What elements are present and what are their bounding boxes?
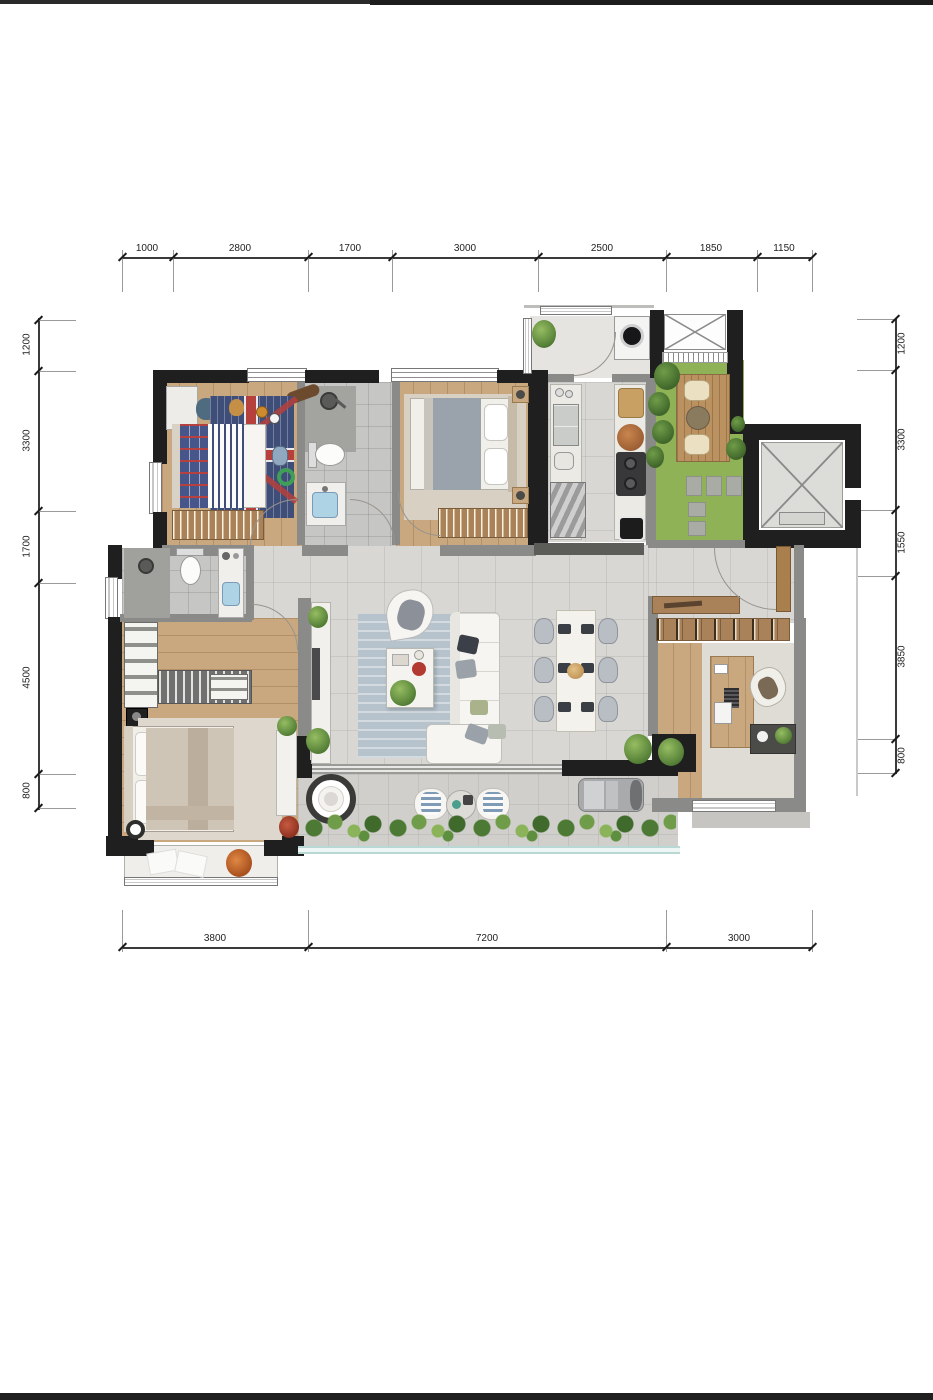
- dim-label-top: 1150: [764, 243, 804, 254]
- round-tray-icon: [617, 424, 644, 451]
- kitchen-bottom-wall: [534, 543, 644, 555]
- bedroom2-duvet: [433, 398, 481, 490]
- kitchen-black-sink: [618, 516, 645, 541]
- kids-bed-striped-duvet: [208, 424, 244, 508]
- dim-label-right: 800: [897, 736, 908, 776]
- partition: [392, 382, 400, 545]
- laundry-plant: [532, 320, 556, 348]
- dim-label-top: 2500: [582, 243, 622, 254]
- dim-label-bottom: 7200: [467, 933, 507, 944]
- dim-label-left: 1700: [22, 527, 33, 567]
- dim-label-top: 3000: [445, 243, 485, 254]
- window: [105, 577, 118, 619]
- recliner-panel: [606, 781, 618, 809]
- recliner-panel: [584, 781, 604, 809]
- partition: [794, 545, 804, 620]
- red-flowers: [279, 816, 299, 838]
- partition: [302, 545, 348, 556]
- pot-icon: [565, 390, 573, 398]
- bedroom2-headboard: [508, 396, 517, 492]
- wardrobe-pillows: [210, 674, 248, 700]
- elevator-wall-right: [845, 500, 861, 548]
- soccer-ball-icon: [269, 413, 280, 424]
- bedroom2-bed-fold: [424, 398, 433, 490]
- dining-chair: [598, 618, 618, 644]
- bay-orange-plant: [226, 849, 252, 877]
- kitchen-sink: [553, 404, 579, 446]
- window: [692, 800, 776, 812]
- round-stool: [126, 820, 145, 839]
- dim-right-ext: [857, 576, 895, 577]
- floor-plan-canvas: 1000 2800 1700 3000 2500 1850 1150 1200 …: [0, 0, 933, 1400]
- deck-chair: [684, 380, 710, 401]
- coffee-table-plant: [390, 680, 416, 706]
- master-dresser: [276, 730, 297, 816]
- balcony-glass-railing: [298, 846, 680, 854]
- dim-bottom-line: [122, 947, 813, 949]
- dim-left-ext: [38, 808, 76, 809]
- dim-right-ext: [857, 370, 895, 371]
- courtyard-bush: [652, 420, 674, 444]
- place-setting: [558, 624, 571, 634]
- entry-door-leaf: [776, 546, 791, 612]
- table-centerpiece: [567, 663, 584, 679]
- laptop-icon: [714, 702, 732, 724]
- dim-label-left: 4500: [22, 658, 33, 698]
- dresser-plant: [277, 716, 297, 736]
- courtyard-palm: [726, 438, 746, 460]
- dim-label-top: 1850: [691, 243, 731, 254]
- sofa-pillow-gray: [455, 659, 477, 680]
- pot-icon: [555, 388, 564, 397]
- dim-left-ext: [38, 320, 76, 321]
- dim-label-right: 1550: [897, 523, 908, 563]
- partition: [612, 374, 650, 382]
- courtyard-bush: [731, 416, 745, 432]
- stepping-stone: [706, 476, 722, 496]
- vanity-item: [233, 553, 239, 559]
- wall: [305, 370, 379, 383]
- kids-bed-plaid-blanket: [180, 424, 208, 508]
- red-bowl: [412, 662, 426, 676]
- elevator-wall-top: [743, 424, 861, 440]
- teal-plate-icon: [452, 800, 461, 809]
- place-setting: [581, 702, 594, 712]
- master-throw: [146, 806, 234, 820]
- egg-chair-throw: [324, 792, 338, 806]
- cup-icon: [757, 731, 768, 742]
- tv-plant: [308, 606, 328, 628]
- stepping-stone: [726, 476, 742, 496]
- toilet-tank: [176, 548, 204, 556]
- nightstand-lamp-icon: [516, 491, 525, 500]
- toilet-bowl: [180, 556, 201, 585]
- duct-shaft-x-icon: [664, 314, 726, 350]
- tv-plant: [306, 728, 330, 754]
- recliner-headrest: [630, 780, 642, 810]
- dim-left-line: [38, 318, 40, 810]
- elevator-wall-right: [845, 424, 861, 488]
- cutting-board-icon: [618, 388, 644, 418]
- toilet-bowl: [315, 443, 345, 466]
- burner-icon: [624, 477, 637, 490]
- wall: [153, 370, 249, 383]
- stepping-stone: [686, 476, 702, 496]
- bedroom2-pillow: [484, 404, 508, 441]
- sofa-pillow-green: [470, 700, 488, 715]
- elevator-counterweight: [779, 512, 825, 525]
- dim-label-bottom: 3000: [719, 933, 759, 944]
- refrigerator: [550, 482, 586, 538]
- burner-icon: [624, 457, 637, 470]
- dim-top-line: [122, 257, 813, 259]
- dim-label-right: 1200: [897, 324, 908, 364]
- dim-label-left: 3300: [22, 421, 33, 461]
- kettle-icon: [554, 452, 574, 470]
- master-sink: [222, 582, 240, 606]
- stepping-stone: [688, 521, 706, 536]
- stepping-stone: [688, 502, 706, 517]
- place-setting: [558, 702, 571, 712]
- balcony-sliding-door: [312, 764, 562, 774]
- partition: [794, 618, 806, 812]
- window: [247, 368, 307, 382]
- wall: [153, 370, 167, 464]
- master-headboard: [124, 726, 133, 832]
- washer-drum-icon: [620, 324, 644, 348]
- deck-chair: [684, 434, 710, 455]
- dim-right-ext: [857, 319, 895, 320]
- kids-bed-headboard: [172, 424, 180, 508]
- dim-label-top: 1000: [127, 243, 167, 254]
- dim-label-left: 800: [22, 771, 33, 811]
- window: [523, 318, 532, 374]
- wall: [108, 545, 122, 579]
- partition: [548, 374, 574, 382]
- bottom-edge-bar: [0, 1393, 933, 1400]
- dim-right-ext: [857, 739, 895, 740]
- dim-label-right: 3850: [897, 637, 908, 677]
- dim-label-top: 2800: [220, 243, 260, 254]
- vent-hatch: [662, 352, 728, 363]
- property-line: [856, 548, 858, 796]
- top-edge-bar-right: [370, 0, 933, 5]
- partition: [648, 596, 658, 736]
- bay-window-glass: [124, 877, 278, 886]
- nightstand-lamp-icon: [516, 390, 525, 399]
- window: [391, 368, 499, 382]
- place-setting: [581, 624, 594, 634]
- dining-plant: [624, 734, 652, 764]
- wall: [108, 617, 122, 841]
- teddy-bear-icon: [229, 399, 244, 416]
- cabinet-plant: [775, 727, 792, 744]
- cup-icon: [414, 650, 424, 660]
- dim-left-ext: [38, 774, 76, 775]
- dark-plate-icon: [463, 795, 473, 805]
- tablet-icon: [714, 664, 728, 674]
- bathroom-sink: [312, 492, 338, 518]
- tv-screen: [312, 648, 320, 700]
- bedroom2-wardrobe: [438, 508, 528, 538]
- dim-left-ext: [38, 511, 76, 512]
- dim-right-ext: [857, 510, 895, 511]
- backpack-icon: [272, 446, 288, 466]
- dim-right-ext: [857, 773, 895, 774]
- courtyard-bush: [646, 446, 664, 468]
- dim-label-bottom: 3800: [195, 933, 235, 944]
- dim-left-ext: [38, 583, 76, 584]
- courtyard-bush: [648, 392, 670, 416]
- sofa-pillow-sage: [488, 724, 506, 739]
- window: [149, 462, 162, 514]
- dim-left-ext: [38, 371, 76, 372]
- dining-chair: [598, 657, 618, 683]
- dining-chair: [598, 696, 618, 722]
- deck-table: [686, 406, 710, 430]
- faucet-dot: [322, 486, 328, 492]
- slab-edge: [692, 812, 810, 828]
- balcony-planting-strip: [302, 812, 676, 844]
- basketball-icon: [256, 406, 268, 418]
- dining-chair: [534, 657, 554, 683]
- study-bookshelf: [656, 618, 790, 641]
- dining-chair: [534, 696, 554, 722]
- bedroom2-pillow: [484, 448, 508, 485]
- book-on-table: [392, 654, 409, 666]
- partition: [297, 382, 305, 545]
- master-wardrobe-shelves: [124, 622, 158, 708]
- toy-ring-icon: [277, 468, 295, 486]
- courtyard-bottom-wall: [648, 540, 745, 548]
- wall-bed2-kitchen: [528, 370, 548, 545]
- dining-chair: [534, 618, 554, 644]
- window: [540, 306, 612, 315]
- partition: [440, 545, 536, 556]
- courtyard-bush: [654, 362, 680, 390]
- shower-head-icon: [138, 558, 154, 574]
- vanity-item: [222, 552, 230, 560]
- dim-label-right: 3300: [897, 420, 908, 460]
- study-floor-plant: [658, 738, 684, 766]
- dim-label-left: 1200: [22, 325, 33, 365]
- dim-label-top: 1700: [330, 243, 370, 254]
